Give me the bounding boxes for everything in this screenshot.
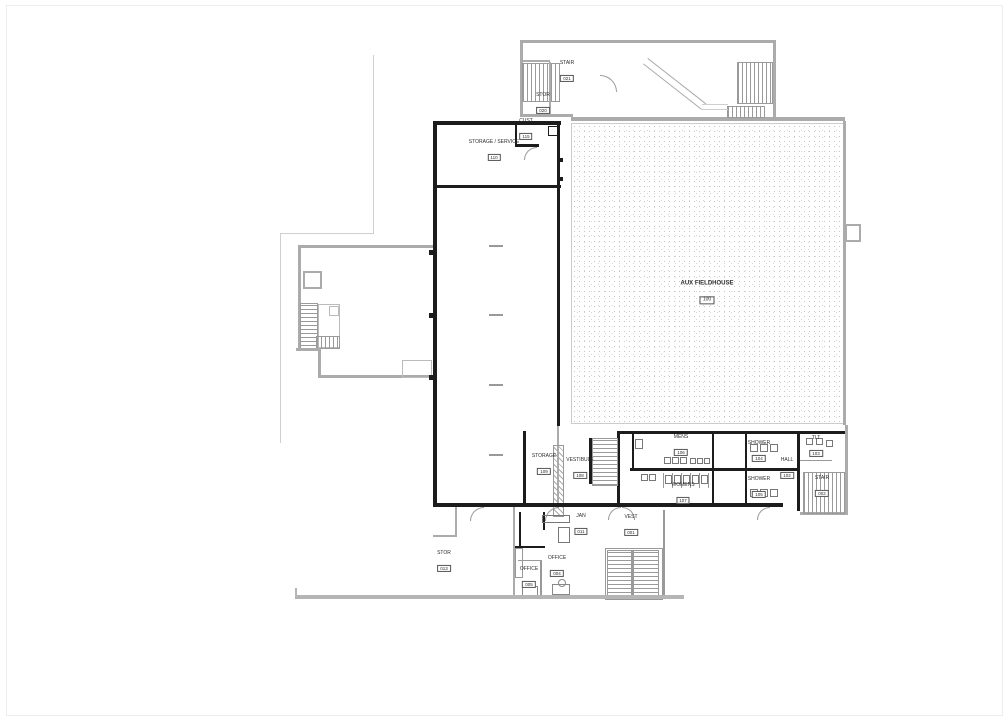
wall-segment: [523, 431, 526, 507]
fixture: [826, 440, 833, 447]
stair: [607, 550, 633, 598]
wall-segment: [522, 60, 550, 62]
door-jamb: [557, 177, 563, 181]
site-line: [373, 55, 374, 233]
wall-segment: [540, 560, 542, 598]
room-tag: STORAGE109: [532, 454, 556, 478]
room-tag: WOMENS107: [671, 483, 694, 507]
wall-segment: [296, 348, 320, 351]
column-line: [489, 314, 503, 316]
room-tag: VESTIBULE108: [566, 458, 594, 482]
room-tag: SHOWER104: [748, 441, 771, 465]
room-tag: VEST001: [624, 515, 638, 539]
shower-fixture: [770, 444, 778, 452]
wall-segment: [318, 348, 321, 378]
wall-segment: [298, 245, 435, 248]
wall-segment: [712, 470, 714, 503]
room-tag: JAN011: [574, 514, 587, 538]
site-line: [280, 233, 281, 443]
room-tag: HALL102: [780, 458, 794, 482]
column-line: [489, 245, 503, 247]
wall-segment: [630, 468, 800, 471]
shower-fixture: [770, 489, 778, 497]
window-jamb: [429, 375, 433, 380]
wall-segment: [433, 185, 561, 188]
urinal-fixture: [690, 458, 696, 464]
site-wall: [295, 588, 297, 597]
stair: [737, 62, 773, 104]
urinal-fixture: [704, 458, 710, 464]
stair-rail: [631, 550, 632, 596]
ramp: [702, 109, 728, 110]
wall-segment: [455, 507, 457, 537]
room-tag: STOR020: [536, 93, 550, 117]
stall-partition: [699, 473, 700, 488]
casework: [558, 527, 570, 543]
shaft: [329, 306, 339, 316]
drawing-sheet: STAIR021 STOR020 CUST115 STORAGE / SERVI…: [0, 0, 1008, 720]
wall-segment: [745, 433, 747, 503]
stair: [633, 550, 659, 598]
stall-partition: [663, 473, 664, 488]
sheet-border: [6, 5, 1003, 716]
wall-segment: [433, 535, 457, 537]
shaft: [303, 271, 322, 289]
wall-segment: [571, 117, 845, 121]
sink-fixture: [649, 474, 656, 481]
wall-segment: [663, 510, 665, 598]
room-tag: STOR013: [437, 551, 451, 575]
wall-segment: [519, 512, 521, 548]
shaft: [548, 126, 558, 136]
wall-segment: [433, 503, 783, 507]
wall-segment: [773, 40, 776, 120]
wall-segment: [845, 425, 848, 515]
window-jamb: [429, 250, 433, 255]
wall-segment: [800, 460, 832, 461]
alcove: [845, 224, 861, 242]
column-line: [489, 384, 503, 386]
room-tag: OFFICE005: [520, 567, 538, 591]
urinal-fixture: [697, 458, 703, 464]
wall-segment: [433, 121, 561, 125]
stair: [592, 438, 618, 486]
wall-segment: [632, 433, 634, 468]
column-line: [489, 454, 503, 456]
room-tag: MENS106: [674, 435, 688, 459]
room-tag: STAIR002: [815, 476, 829, 500]
sink-fixture: [641, 474, 648, 481]
site-wall: [295, 595, 684, 599]
title-block: FORD REC CENTER GRAND RAPIDS COMMUNITY C…: [0, 626, 1008, 686]
room-tag-main: AUX FIELDHOUSE100: [680, 280, 733, 305]
wall-segment: [797, 431, 800, 511]
turf-area: [571, 123, 844, 424]
room-tag: STAIR021: [560, 61, 574, 85]
room-tag: OFFICE004: [548, 556, 566, 580]
site-line: [280, 233, 374, 234]
wall-segment: [843, 121, 846, 425]
wall-segment: [433, 121, 437, 507]
room-tag: CUST115: [519, 119, 533, 143]
wall-segment: [557, 121, 560, 426]
room-tag: STORAGE / SERVICE110: [469, 140, 519, 164]
chair: [558, 579, 566, 587]
ramp: [702, 104, 728, 105]
door-jamb: [557, 158, 563, 162]
wall-segment: [617, 431, 848, 434]
stall-partition: [708, 473, 709, 488]
toilet-fixture: [701, 475, 708, 484]
room-tag: TLT103: [809, 436, 823, 460]
pit: [402, 360, 432, 378]
room-tag: SHOWER105: [748, 477, 771, 501]
window-jamb: [429, 313, 433, 318]
sink-fixture: [664, 457, 671, 464]
fixture: [635, 439, 643, 449]
wall-segment: [520, 40, 776, 43]
stair-landing: [727, 106, 765, 118]
wall-segment: [712, 433, 714, 468]
